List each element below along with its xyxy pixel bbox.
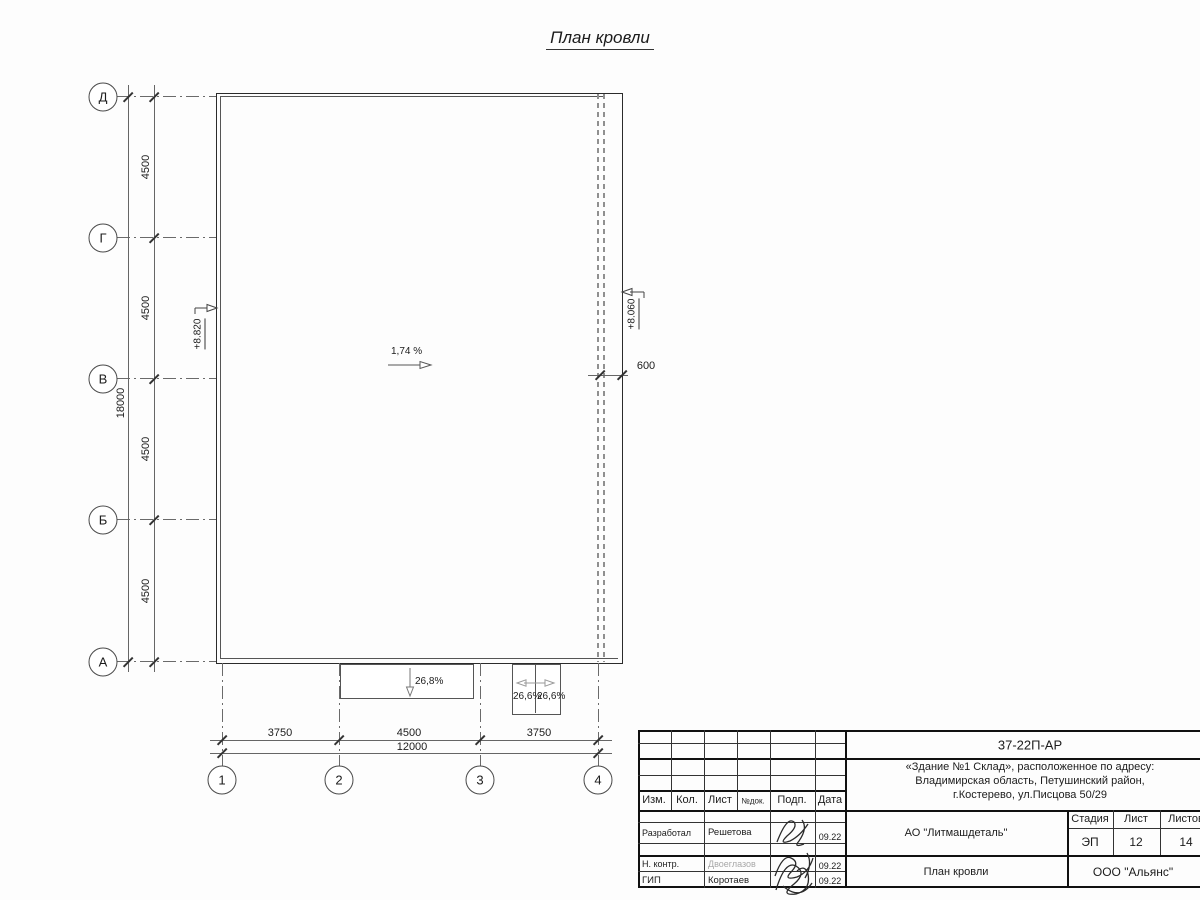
titleblock-line [638, 743, 845, 744]
axis-bubble-2: 2 [325, 766, 354, 795]
slope-arrow-icon [388, 359, 432, 371]
axis-label-3: 3 [476, 773, 483, 788]
sheet-value: 12 [1129, 835, 1142, 849]
col-kol-label: Кол. [676, 794, 698, 806]
titleblock-line [1067, 828, 1200, 829]
dim-edge-offset: 600 [637, 360, 655, 372]
signature-razrabotal [773, 814, 817, 850]
name-gip: Коротаев [708, 875, 749, 886]
axis-line-3 [480, 663, 481, 766]
client-org: АО "Литмашдеталь" [905, 827, 1008, 839]
axis-bubble-4: 4 [584, 766, 613, 795]
canopy-slope-label: 26,8% [415, 676, 443, 687]
col-list-label: Лист [708, 794, 732, 806]
dim-line-total-horizontal [210, 753, 612, 754]
axis-line-b [117, 519, 216, 520]
name-nkontr: Двоеглазов [708, 859, 756, 869]
titleblock-line [671, 730, 672, 810]
axis-label-d: Д [99, 90, 108, 105]
axis-bubble-d: Д [89, 83, 118, 112]
axis-bubble-v: В [89, 365, 118, 394]
signature-gip [770, 856, 820, 898]
ramp-outline [512, 664, 561, 715]
roof-outline-inner-top [220, 96, 604, 97]
titleblock-line [638, 810, 1200, 812]
dim-line-total-vertical [128, 85, 129, 672]
col-izm-label: Изм. [642, 794, 666, 806]
axis-label-a: А [99, 655, 108, 670]
sheet-label: Лист [1124, 813, 1148, 825]
project-address-line3: г.Костерево, ул.Писцова 50/29 [953, 789, 1107, 801]
project-address-line2: Владимирская область, Петушинский район, [915, 775, 1144, 787]
sheets-label: Листов [1168, 813, 1200, 825]
titleblock-line [737, 730, 738, 810]
axis-bubble-a: А [89, 648, 118, 677]
axis-label-g: Г [99, 231, 106, 246]
main-slope-label: 1,74 % [391, 346, 422, 357]
axis-label-2: 2 [335, 773, 342, 788]
titleblock-line [704, 730, 705, 888]
date-gip: 09.22 [819, 876, 842, 886]
dim-col-spacing-2: 4500 [397, 727, 421, 739]
elevation-right-label: +8.060 [627, 299, 640, 330]
doc-code: 37-22П-АР [998, 738, 1062, 753]
elevation-left-label: +8.820 [193, 319, 206, 350]
role-razrabotal: Разработал [642, 828, 691, 838]
axis-bubble-g: Г [89, 224, 118, 253]
design-company: ООО "Альянс" [1093, 865, 1173, 879]
dim-col-total: 12000 [397, 741, 428, 753]
elevation-right-arrow-icon [618, 285, 648, 301]
titleblock-line [1067, 810, 1069, 888]
axis-line-d [117, 96, 216, 97]
dim-row-spacing-4: 4500 [140, 579, 152, 603]
stage-value: ЭП [1081, 835, 1098, 849]
roof-outline-outer [216, 93, 623, 664]
dim-col-spacing-1: 3750 [268, 727, 292, 739]
sheets-value: 14 [1179, 835, 1192, 849]
dim-col-spacing-3: 3750 [527, 727, 551, 739]
sheet-title: План кровли [924, 866, 989, 878]
col-data-label: Дата [818, 794, 842, 806]
elevation-left-arrow-icon [192, 301, 220, 317]
titleblock-divider-main [845, 730, 847, 888]
axis-label-1: 1 [218, 773, 225, 788]
axis-label-b: Б [99, 513, 108, 528]
axis-line-v [117, 378, 216, 379]
axis-bubble-3: 3 [466, 766, 495, 795]
col-ndok-label: №док. [741, 797, 764, 806]
titleblock-line [1113, 810, 1114, 855]
titleblock-border-left [638, 730, 640, 888]
dim-row-spacing-1: 4500 [140, 155, 152, 179]
titleblock-line [638, 790, 845, 792]
titleblock-border-top [638, 730, 1200, 732]
role-nkontr: Н. контр. [642, 859, 679, 869]
date-razrabotal: 09.22 [819, 832, 842, 842]
drawing-title-text: План кровли [546, 28, 654, 50]
roof-outline-inner-left [220, 96, 221, 659]
titleblock-line [638, 855, 1200, 857]
drawing-sheet: { "title": "План кровли", "grid": { "row… [0, 0, 1200, 900]
titleblock-border-bottom [638, 886, 1200, 888]
date-nkontr: 09.22 [819, 861, 842, 871]
titleblock-line [638, 775, 845, 776]
axis-bubble-1: 1 [208, 766, 237, 795]
dim-row-spacing-2: 4500 [140, 296, 152, 320]
dim-row-total: 18000 [115, 388, 127, 419]
axis-line-a [117, 661, 216, 662]
axis-label-v: В [99, 372, 108, 387]
titleblock-line [638, 758, 1200, 760]
hidden-wall-line-2 [603, 94, 605, 662]
drawing-title: План кровли [0, 28, 1200, 48]
ramp-slope-arrows-icon [514, 677, 557, 689]
ramp-slope-right-label: 26,6% [537, 691, 565, 702]
roof-outline-inner-bottom [220, 658, 618, 659]
stage-label: Стадия [1071, 813, 1109, 825]
titleblock-line [1160, 810, 1161, 855]
col-podp-label: Подп. [777, 794, 806, 806]
project-address-line1: «Здание №1 Склад», расположенное по адре… [906, 761, 1155, 773]
axis-bubble-b: Б [89, 506, 118, 535]
name-razrabotal: Решетова [708, 827, 752, 838]
dim-row-spacing-3: 4500 [140, 437, 152, 461]
axis-label-4: 4 [594, 773, 601, 788]
axis-line-g [117, 237, 216, 238]
role-gip: ГИП [642, 875, 661, 886]
